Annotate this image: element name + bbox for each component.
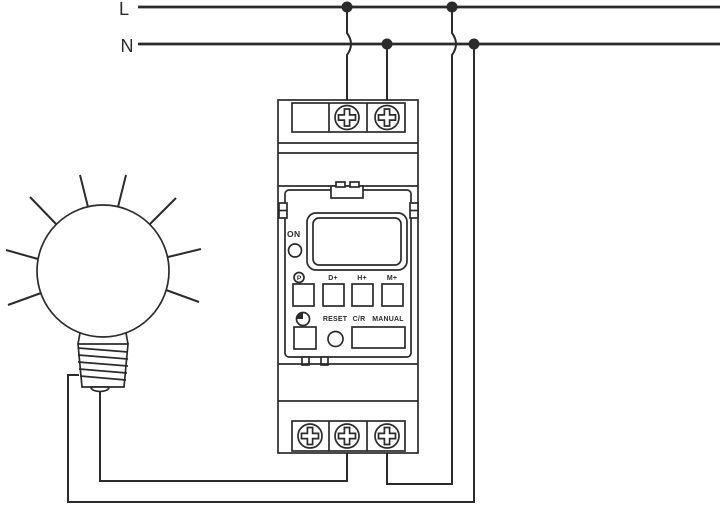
wire-live-to-timer-input: [347, 7, 351, 104]
bulb-contact: [91, 387, 109, 392]
manual-label: MANUAL: [372, 316, 404, 323]
terminal-screw-top-right: [375, 106, 399, 130]
bulb-glass: [37, 205, 169, 337]
hour-plus-button: [352, 284, 373, 306]
program-label: P: [297, 275, 302, 282]
junction-dot-neutral-2: [469, 39, 480, 50]
hour-plus-label: H+: [357, 275, 367, 282]
timer-device: ON P D+ H+ M+ RESET C/R MANUAL: [278, 100, 418, 453]
reset-label: RESET: [323, 316, 348, 323]
junction-dot-neutral-1: [382, 39, 393, 50]
terminal-screw-bottom-left: [298, 424, 322, 448]
terminal-screw-top-left: [335, 106, 359, 130]
day-plus-label: D+: [328, 275, 338, 282]
day-plus-button: [323, 284, 344, 306]
front-panel: ON P D+ H+ M+ RESET C/R MANUAL: [279, 182, 418, 365]
light-bulb: [6, 175, 201, 392]
junction-dot-live-2: [447, 2, 458, 13]
on-indicator-label: ON: [287, 229, 301, 239]
junction-dot-live-1: [342, 2, 353, 13]
terminal-screw-bottom-right: [375, 424, 399, 448]
wiring-diagram-canvas: L N: [0, 0, 720, 510]
top-clip-tooth-left: [336, 182, 345, 187]
top-terminal-block: [292, 103, 405, 132]
power-lines: L N: [119, 0, 720, 56]
reset-button: [328, 332, 343, 347]
wiring-diagram: L N: [0, 0, 720, 510]
neutral-line-label: N: [121, 36, 134, 56]
manual-override-button: [352, 327, 405, 348]
top-clip-tooth-right: [350, 182, 359, 187]
terminal-screw-bottom-middle: [335, 424, 359, 448]
count-reset-label: C/R: [353, 316, 366, 323]
lcd-screen: [313, 218, 401, 265]
bottom-terminal-block: [292, 421, 405, 451]
program-button: [293, 284, 314, 306]
minute-plus-button: [382, 284, 403, 306]
on-indicator-led: [289, 244, 302, 257]
clock-button: [294, 327, 316, 349]
minute-plus-label: M+: [387, 275, 397, 282]
live-line-label: L: [119, 0, 129, 19]
